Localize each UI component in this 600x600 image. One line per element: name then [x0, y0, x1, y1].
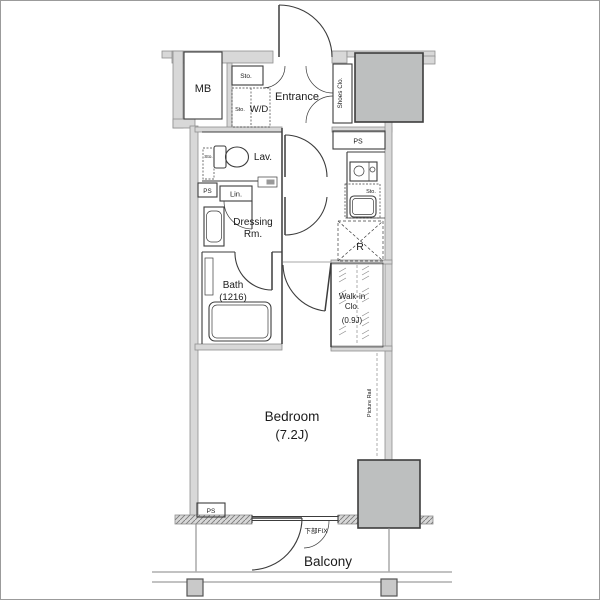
bath-counter [205, 258, 213, 295]
stove-burner-small [370, 167, 375, 172]
bathtub [209, 302, 271, 341]
label-shoes-closet: Shoes Clo. [337, 77, 344, 108]
shaft-bottom-right [358, 460, 420, 528]
entrance-area: Sto. Sto. W/D Entrance Shoes Clo. [232, 5, 352, 127]
label-refrigerator: R [356, 241, 364, 253]
hall-door-lower-arc [285, 197, 327, 235]
balcony-post-right [381, 579, 397, 596]
bath-bedroom-wall [195, 344, 282, 350]
label-walkin-1: Walk-in [339, 292, 365, 301]
label-walkin-3: (0.9J) [342, 316, 363, 325]
dressing-room: PS Lin. Dressing Rm. [198, 183, 273, 246]
bedroom-door-leaf [325, 263, 331, 311]
label-bedroom-1: Bedroom [265, 409, 320, 424]
shaft-top-right [355, 53, 423, 122]
label-washer-dryer: W/D [250, 104, 269, 115]
lavatory: Sto. Lav. [202, 128, 282, 344]
label-mb: MB [195, 83, 212, 95]
label-lavatory: Lav. [254, 152, 272, 163]
label-picture-rail: Picture Rail [367, 389, 373, 417]
bath: Bath (1216) [202, 252, 282, 344]
sliding-door-panel [267, 180, 275, 185]
label-lower-fix: 下部FIX [304, 526, 328, 535]
label-pipe-space-left: PS [203, 188, 211, 195]
label-laundry-storage: Sto. [235, 107, 245, 113]
bedroom: Bedroom (7.2J) Picture Rail PS [197, 353, 377, 517]
bedroom-door-arc [283, 265, 325, 311]
toilet-tank [214, 146, 226, 168]
entrance-storage-door-arc [263, 66, 285, 88]
label-linen: Lin. [230, 190, 242, 199]
wash-basin [207, 211, 222, 242]
floor-plan: MB Sto. Sto. W/D Entrance Shoes Clo. [0, 0, 600, 600]
stove-burner-large [354, 166, 364, 176]
balcony-post-left [187, 579, 203, 596]
wash-basin-counter [204, 207, 224, 246]
label-pipe-space-top: PS [353, 139, 363, 146]
hanger-marks [339, 268, 346, 282]
label-bath-2: (1216) [219, 292, 246, 303]
label-lavatory-storage: Sto. [204, 154, 213, 160]
label-kitchen-storage: Sto. [366, 189, 376, 195]
label-dressing-2: Rm. [244, 229, 262, 240]
kitchen: PS Sto. R [333, 131, 385, 261]
bathtub-inner [212, 305, 268, 338]
walkin-closet: Walk-in Clo. (0.9J) [331, 263, 383, 347]
shoes-door-arc-top [306, 66, 333, 93]
label-bedroom-2: (7.2J) [275, 427, 308, 442]
floor-plan-svg: MB Sto. Sto. W/D Entrance Shoes Clo. [0, 0, 600, 600]
label-pipe-space-bottom: PS [207, 508, 216, 515]
label-entrance: Entrance [275, 91, 319, 103]
lavatory-storage-box [203, 148, 214, 179]
hallway-doors [285, 135, 327, 235]
bedroom-door [283, 262, 331, 311]
meter-box: MB [184, 52, 222, 119]
label-balcony: Balcony [304, 554, 352, 569]
label-bath-1: Bath [223, 280, 244, 291]
balcony: Balcony [152, 524, 452, 596]
label-dressing-1: Dressing [233, 217, 272, 228]
kitchen-sink-inner [353, 199, 374, 215]
label-entrance-storage: Sto. [240, 73, 252, 80]
toilet-bowl [226, 147, 249, 167]
entrance-door-arc [279, 5, 332, 57]
balcony-door-arc [252, 518, 302, 570]
label-walkin-2: Clo. [345, 302, 359, 311]
hall-door-upper-arc [285, 135, 327, 177]
